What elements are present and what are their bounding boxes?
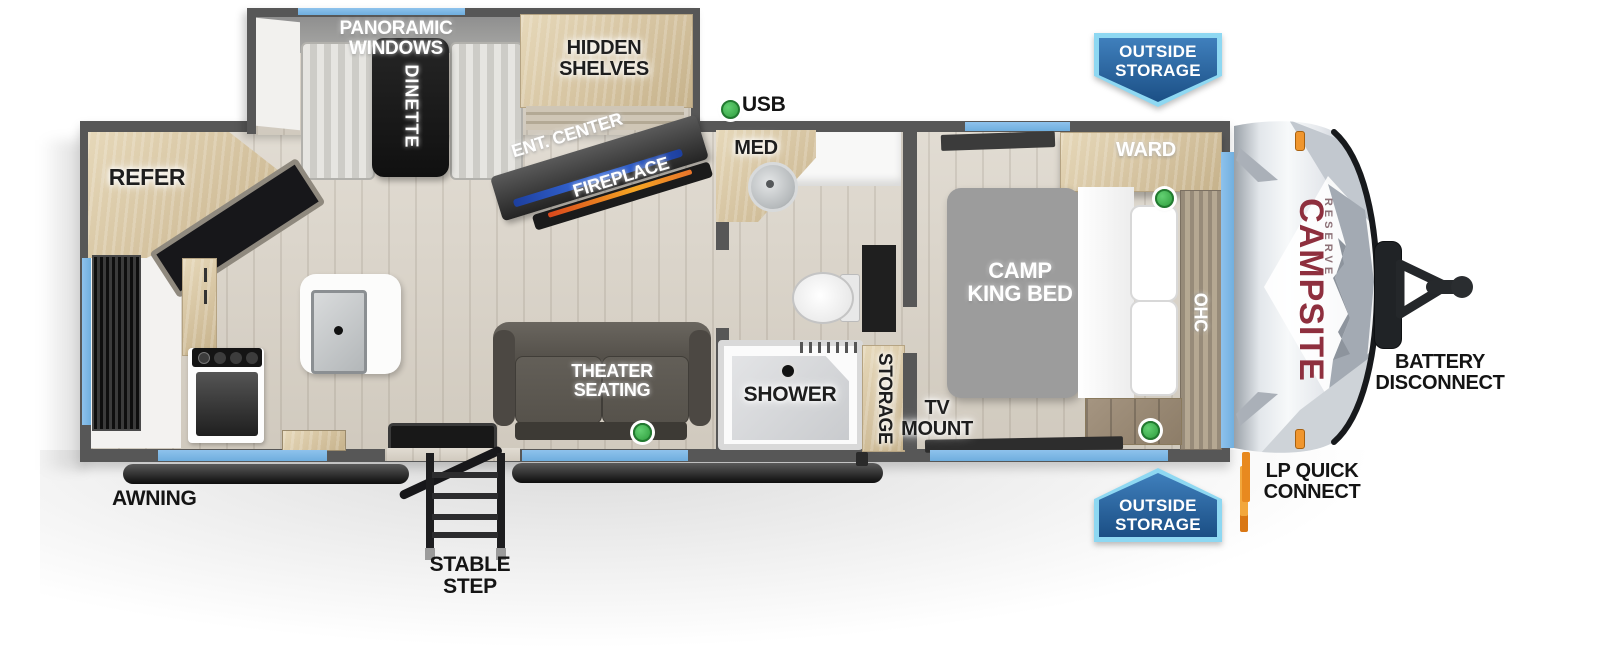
usb-dot-theater <box>633 423 652 442</box>
awning-label: AWNING <box>112 488 202 510</box>
awning-mount-nub <box>856 452 868 466</box>
theater-armrest-left <box>493 330 515 426</box>
theater-seating-label: THEATER SEATING <box>552 362 672 399</box>
bed-wall-top <box>903 128 917 307</box>
slideout-window <box>298 8 465 15</box>
shower-drain <box>782 365 794 377</box>
panoramic-windows-label: PANORAMIC WINDOWS <box>297 19 495 59</box>
window-bottom-living <box>522 450 688 461</box>
battery-disconnect-label: BATTERY DISCONNECT <box>1374 352 1506 394</box>
window-front-wall <box>1221 152 1235 448</box>
toilet-bowl <box>792 272 854 324</box>
window-top-bedroom <box>965 122 1070 131</box>
cabinet-handles <box>204 268 207 282</box>
dinette-label: DINETTE <box>402 41 421 171</box>
med-label: MED <box>728 138 784 159</box>
step-rail-right <box>497 453 505 549</box>
bath-tv <box>862 245 896 332</box>
theater-footrest <box>515 422 687 440</box>
oven-door <box>196 372 258 436</box>
rear-wall-shadow <box>40 140 84 470</box>
stable-step-label: STABLE STEP <box>405 554 535 598</box>
slideout-side-wall <box>256 18 300 131</box>
usb-legend-label: USB <box>742 94 792 116</box>
lp-fitting <box>1242 452 1250 502</box>
dinette-bench-left <box>301 42 375 180</box>
refer-label: REFER <box>106 166 188 190</box>
step-rungs <box>432 472 498 478</box>
burner <box>198 352 210 364</box>
ohc-label: OHC <box>1191 282 1210 342</box>
storage-label: STORAGE <box>874 353 894 443</box>
awning-bar-right <box>512 463 883 483</box>
usb-dot-bed-top <box>1155 189 1174 208</box>
bath-sink-drain <box>766 180 774 188</box>
lp-quick-connect-label: LP QUICK CONNECT <box>1258 461 1366 503</box>
bed-pillow-top <box>1130 205 1178 302</box>
brand-series: RESERVE <box>1319 188 1333 288</box>
sink-faucet <box>334 326 343 335</box>
window-rear-wall <box>82 258 91 425</box>
hitch-aframe <box>1396 256 1474 322</box>
outside-storage-badge-top: OUTSIDE STORAGE <box>1094 33 1222 107</box>
floorplan-canvas: DINETTE HIDDEN SHELVES PANORAMIC WINDOWS… <box>0 0 1600 659</box>
bath-sink <box>748 162 798 212</box>
shower-label: SHOWER <box>740 384 840 406</box>
outside-storage-bottom-label: OUTSIDE STORAGE <box>1094 496 1222 534</box>
usb-dot-bed-bottom <box>1141 421 1160 440</box>
theater-armrest-right <box>689 330 711 426</box>
pantry-tambour <box>92 255 141 431</box>
marker-light-top <box>1295 131 1305 151</box>
outside-storage-top-label: OUTSIDE STORAGE <box>1094 42 1222 80</box>
kitchen-tall-cabinet <box>182 258 217 356</box>
outside-storage-badge-bottom: OUTSIDE STORAGE <box>1094 468 1222 542</box>
awning-bar-left <box>123 464 409 484</box>
step-rail-left <box>426 453 434 549</box>
tv-mount-label: TV MOUNT <box>896 398 978 440</box>
hidden-shelves-label: HIDDEN SHELVES <box>543 38 665 80</box>
camp-king-bed-label: CAMP KING BED <box>950 260 1090 306</box>
usb-legend-dot <box>721 100 740 119</box>
bed-pillow-bottom <box>1130 300 1178 396</box>
window-bottom-bedroom <box>930 450 1168 461</box>
ward-label: WARD <box>1108 140 1184 161</box>
marker-light-bottom <box>1295 429 1305 449</box>
lower-counter-strip <box>282 430 346 451</box>
window-bottom-kitchen <box>158 450 327 461</box>
shower-door-rail <box>800 342 858 353</box>
